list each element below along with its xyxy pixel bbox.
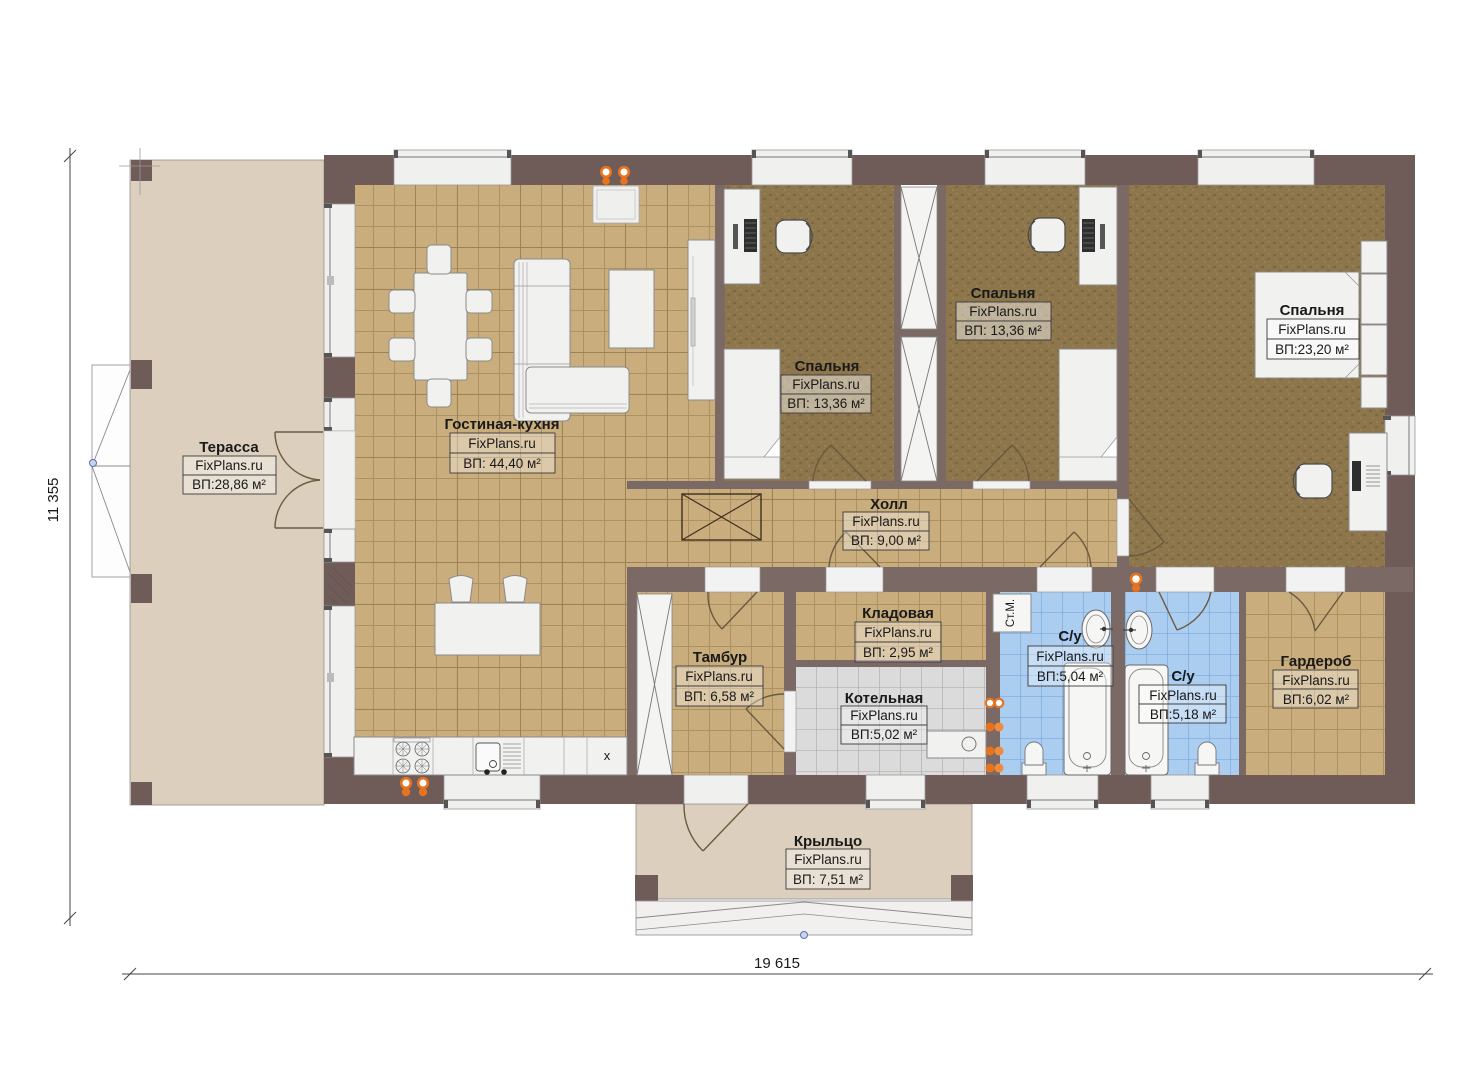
svg-text:FixPlans.ru: FixPlans.ru: [794, 852, 862, 867]
svg-text:FixPlans.ru: FixPlans.ru: [850, 708, 918, 723]
svg-text:FixPlans.ru: FixPlans.ru: [969, 304, 1037, 319]
svg-text:ВП: 7,51 м²: ВП: 7,51 м²: [793, 872, 864, 887]
svg-text:FixPlans.ru: FixPlans.ru: [195, 458, 263, 473]
svg-text:Гостиная-кухня: Гостиная-кухня: [445, 416, 560, 433]
svg-text:x: x: [604, 748, 611, 763]
svg-text:Котельная: Котельная: [845, 690, 924, 707]
svg-text:FixPlans.ru: FixPlans.ru: [864, 625, 932, 640]
svg-text:ВП:5,02 м²: ВП:5,02 м²: [851, 727, 918, 742]
svg-text:С/у: С/у: [1058, 628, 1082, 645]
svg-text:Спальня: Спальня: [795, 358, 860, 375]
svg-text:ВП: 13,36 м²: ВП: 13,36 м²: [964, 323, 1042, 338]
svg-text:Кладовая: Кладовая: [862, 605, 934, 622]
svg-text:FixPlans.ru: FixPlans.ru: [1036, 649, 1104, 664]
svg-text:Терасса: Терасса: [199, 439, 259, 456]
svg-text:ВП:5,18 м²: ВП:5,18 м²: [1150, 707, 1217, 722]
svg-text:FixPlans.ru: FixPlans.ru: [1282, 673, 1350, 688]
svg-text:ВП:23,20 м²: ВП:23,20 м²: [1275, 342, 1349, 357]
svg-text:FixPlans.ru: FixPlans.ru: [468, 436, 536, 451]
svg-text:FixPlans.ru: FixPlans.ru: [685, 669, 753, 684]
svg-text:Тамбур: Тамбур: [693, 649, 747, 666]
svg-text:FixPlans.ru: FixPlans.ru: [852, 514, 920, 529]
svg-text:ВП:28,86 м²: ВП:28,86 м²: [192, 477, 266, 492]
svg-text:19 615: 19 615: [754, 955, 800, 972]
svg-text:FixPlans.ru: FixPlans.ru: [1278, 322, 1346, 337]
svg-text:ВП: 2,95 м²: ВП: 2,95 м²: [863, 645, 934, 660]
svg-text:С/у: С/у: [1171, 668, 1195, 685]
svg-text:ВП: 6,58 м²: ВП: 6,58 м²: [684, 689, 755, 704]
svg-text:Ст.М.: Ст.М.: [1005, 599, 1017, 627]
svg-text:FixPlans.ru: FixPlans.ru: [1149, 688, 1217, 703]
svg-text:ВП: 13,36 м²: ВП: 13,36 м²: [787, 396, 865, 411]
svg-text:ВП: 9,00 м²: ВП: 9,00 м²: [851, 533, 922, 548]
svg-text:ВП: 44,40 м²: ВП: 44,40 м²: [463, 456, 541, 471]
svg-text:FixPlans.ru: FixPlans.ru: [792, 377, 860, 392]
svg-text:Спальня: Спальня: [971, 285, 1036, 302]
svg-text:ВП:6,02 м²: ВП:6,02 м²: [1283, 692, 1350, 707]
svg-text:Спальня: Спальня: [1280, 302, 1345, 319]
svg-text:Холл: Холл: [870, 496, 908, 513]
svg-text:Гардероб: Гардероб: [1281, 653, 1352, 670]
svg-text:ВП:5,04 м²: ВП:5,04 м²: [1037, 669, 1104, 684]
svg-text:Крыльцо: Крыльцо: [794, 833, 862, 850]
svg-text:11 355: 11 355: [45, 478, 62, 523]
